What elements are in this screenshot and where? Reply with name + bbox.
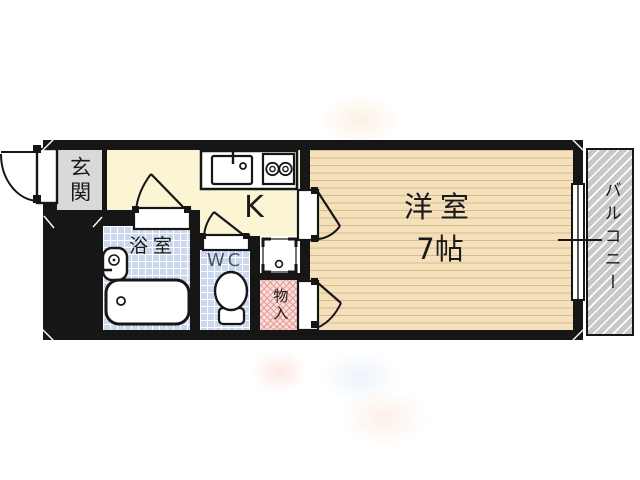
main-room-name: 洋室 (404, 189, 476, 225)
floor-plan-canvas: 玄関 K 浴室 WC 物入 洋室 7帖 バルコニー (0, 0, 640, 480)
entrance-door-icon (1, 145, 57, 203)
storage-label: 物入 (260, 282, 300, 328)
bath-door-icon (132, 174, 191, 229)
main-room-size: 7帖 (416, 231, 463, 267)
bath-label: 浴室 (113, 236, 193, 258)
bathtub-icon (106, 280, 189, 324)
room-door-icon (298, 187, 340, 242)
toilet-icon (215, 272, 247, 324)
kitchen-label: K (234, 190, 274, 226)
balcony-label: バルコニー (588, 163, 632, 313)
gas-stove-icon (263, 154, 294, 184)
closet-door-icon (298, 278, 341, 330)
genkan-label: 玄関 (57, 152, 102, 210)
washing-machine-pad-icon (263, 239, 296, 272)
main-room-label: 洋室 7帖 (350, 185, 530, 271)
fixtures-overlay (0, 0, 640, 480)
wc-label: WC (200, 250, 250, 272)
